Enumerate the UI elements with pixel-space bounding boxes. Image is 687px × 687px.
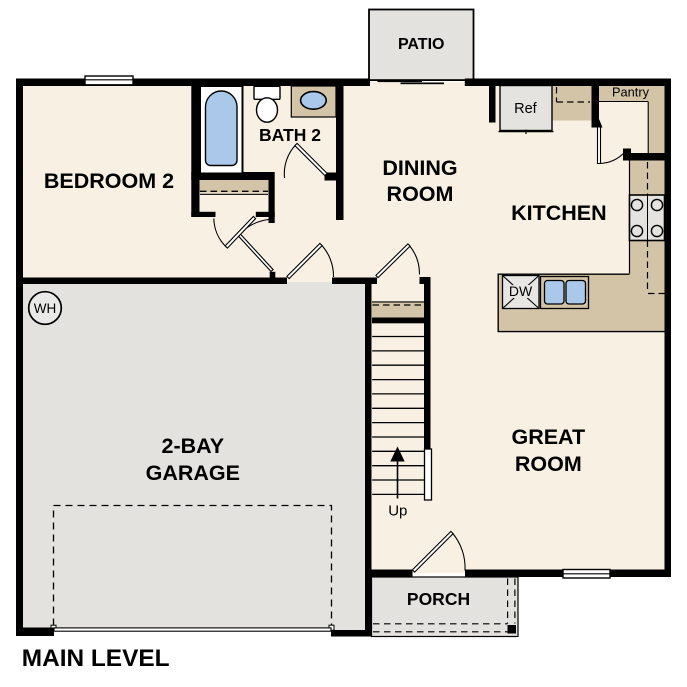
- svg-text:DW: DW: [509, 283, 533, 299]
- svg-text:Ref: Ref: [514, 101, 538, 117]
- svg-text:PATIO: PATIO: [398, 36, 445, 53]
- svg-text:KITCHEN: KITCHEN: [511, 201, 607, 225]
- svg-text:ROOM: ROOM: [387, 182, 454, 206]
- svg-text:BATH 2: BATH 2: [259, 125, 321, 145]
- svg-text:Pantry: Pantry: [612, 84, 650, 99]
- svg-text:BEDROOM 2: BEDROOM 2: [44, 169, 174, 193]
- svg-text:DINING: DINING: [382, 156, 457, 180]
- svg-text:ROOM: ROOM: [515, 452, 582, 476]
- svg-text:MAIN LEVEL: MAIN LEVEL: [22, 645, 170, 672]
- svg-text:GARAGE: GARAGE: [146, 461, 240, 485]
- svg-text:WH: WH: [34, 301, 57, 316]
- svg-text:2-BAY: 2-BAY: [162, 434, 225, 458]
- svg-text:GREAT: GREAT: [511, 425, 585, 449]
- svg-text:PORCH: PORCH: [407, 589, 470, 609]
- svg-text:Up: Up: [388, 503, 407, 520]
